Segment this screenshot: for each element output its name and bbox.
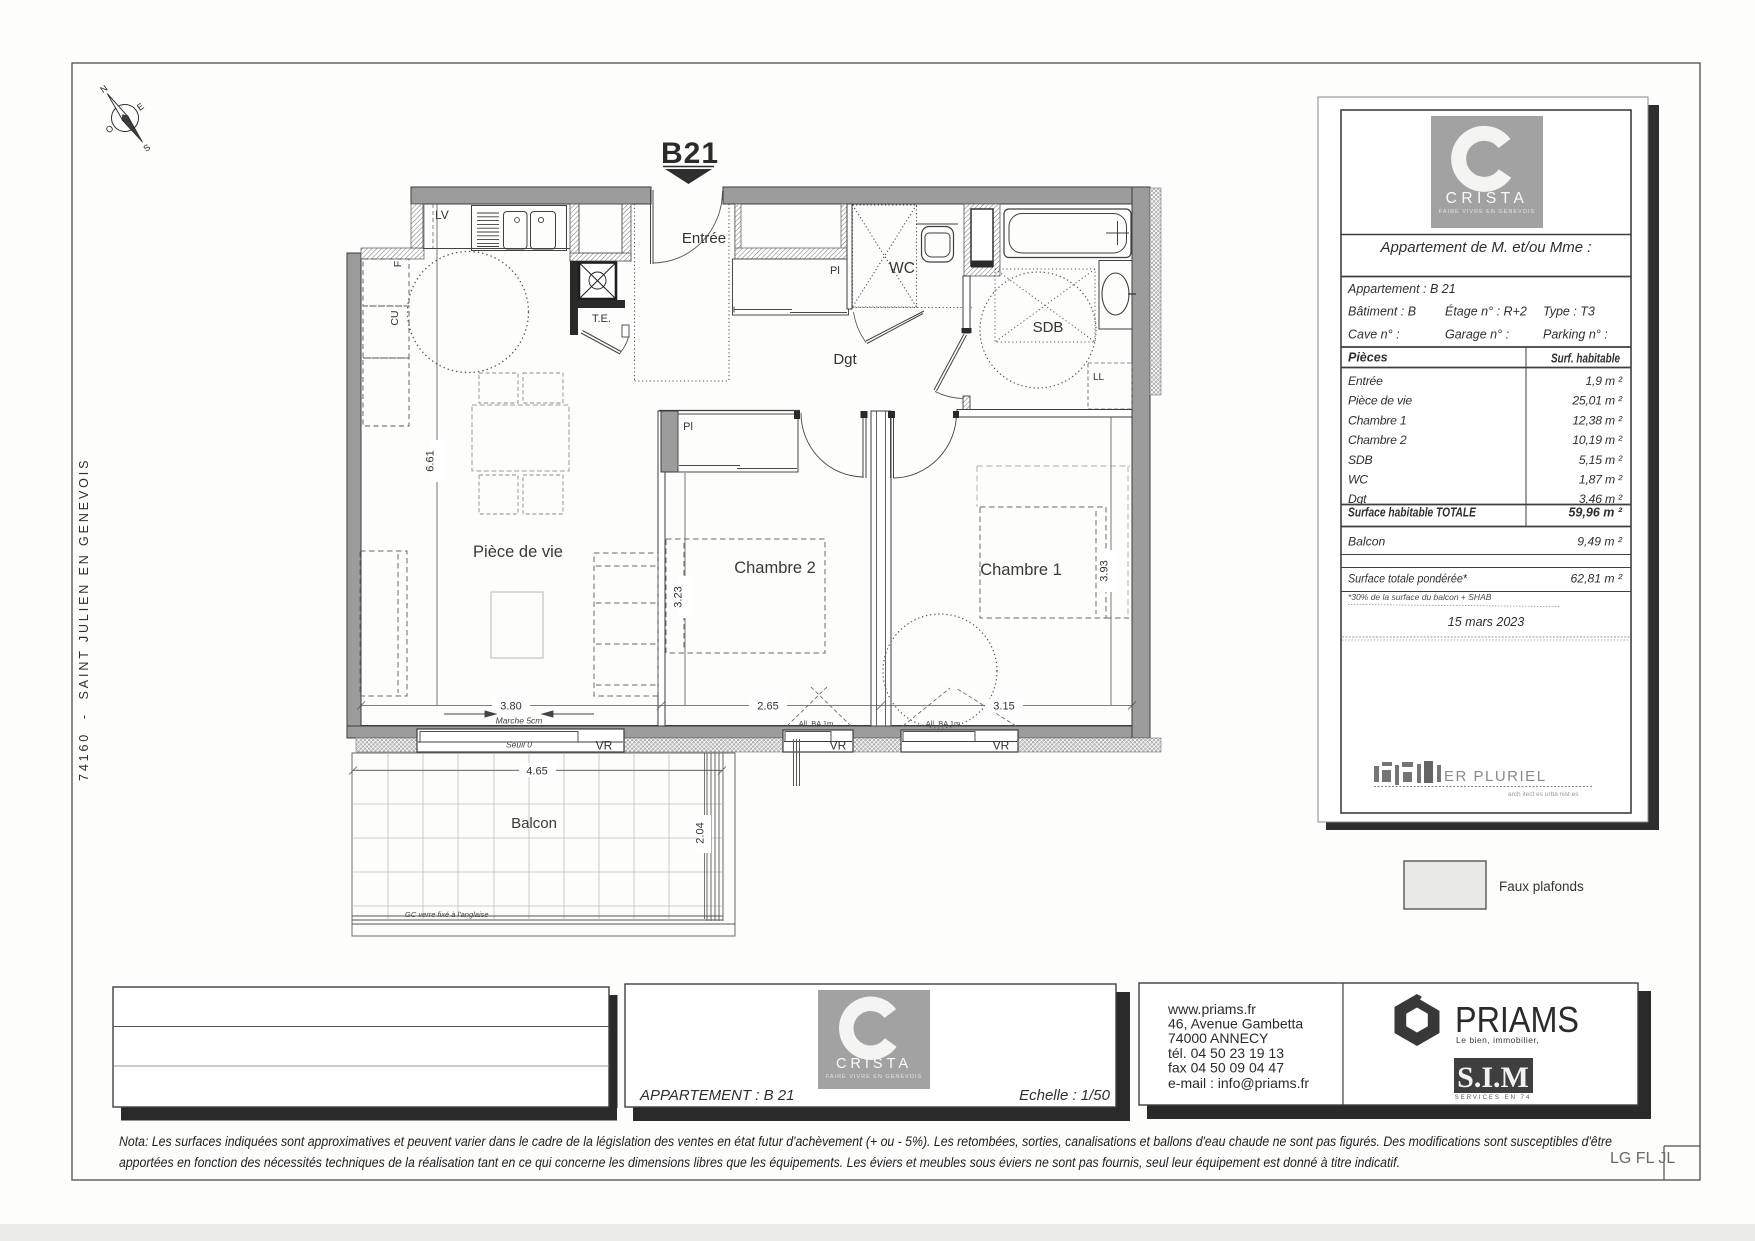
svg-text:LG FL JL: LG FL JL bbox=[1610, 1150, 1675, 1167]
svg-text:VR: VR bbox=[596, 739, 613, 753]
svg-text:Surf. habitable: Surf. habitable bbox=[1551, 352, 1620, 366]
svg-text:FAIRE VIVRE EN GENEVOIS: FAIRE VIVRE EN GENEVOIS bbox=[826, 1074, 922, 1080]
svg-text:9,49 m ²: 9,49 m ² bbox=[1577, 535, 1623, 549]
svg-text:Marche 5cm: Marche 5cm bbox=[496, 716, 543, 726]
svg-text:*30% de la surface du balcon +: *30% de la surface du balcon + SHAB bbox=[1348, 592, 1492, 602]
svg-text:Appartement de M. et/ou Mme :: Appartement de M. et/ou Mme : bbox=[1380, 239, 1592, 256]
svg-text:74000 ANNECY: 74000 ANNECY bbox=[1168, 1030, 1269, 1046]
svg-text:Chambre 1: Chambre 1 bbox=[980, 561, 1062, 579]
svg-text:Chambre 2: Chambre 2 bbox=[1348, 433, 1407, 447]
svg-text:2.65: 2.65 bbox=[757, 701, 778, 713]
svg-text:6.61: 6.61 bbox=[425, 450, 437, 471]
svg-text:Chambre 2: Chambre 2 bbox=[734, 559, 816, 577]
svg-text:Type : T3: Type : T3 bbox=[1543, 305, 1595, 319]
svg-text:1,87 m ²: 1,87 m ² bbox=[1579, 473, 1623, 487]
svg-text:S.I.M: S.I.M bbox=[1457, 1061, 1529, 1094]
svg-text:arch itect es urba nist es: arch itect es urba nist es bbox=[1508, 791, 1579, 798]
svg-text:Parking n° :: Parking n° : bbox=[1543, 328, 1608, 342]
svg-text:10,19 m ²: 10,19 m ² bbox=[1572, 433, 1623, 447]
svg-text:FAIRE VIVRE EN GENEVOIS: FAIRE VIVRE EN GENEVOIS bbox=[1439, 209, 1535, 215]
svg-text:15 mars 2023: 15 mars 2023 bbox=[1448, 615, 1524, 629]
svg-text:Pièce de vie: Pièce de vie bbox=[1348, 394, 1412, 408]
svg-text:APPARTEMENT : B 21: APPARTEMENT : B 21 bbox=[639, 1087, 795, 1104]
svg-text:Surface habitable TOTALE: Surface habitable TOTALE bbox=[1348, 506, 1477, 520]
svg-text:3.93: 3.93 bbox=[1099, 560, 1111, 581]
svg-text:SDB: SDB bbox=[1348, 453, 1373, 467]
svg-text:SDB: SDB bbox=[1033, 319, 1064, 336]
svg-text:F: F bbox=[392, 261, 404, 267]
svg-text:Balcon: Balcon bbox=[511, 815, 557, 832]
svg-text:Le bien, immobilier,: Le bien, immobilier, bbox=[1456, 1035, 1539, 1045]
svg-text:CRISTA: CRISTA bbox=[1446, 190, 1529, 207]
svg-text:Nota: Les surfaces indiquées s: Nota: Les surfaces indiquées sont approx… bbox=[119, 1134, 1612, 1149]
svg-text:12,38 m ²: 12,38 m ² bbox=[1572, 413, 1623, 427]
svg-text:GC verre fixé à l'anglaise: GC verre fixé à l'anglaise bbox=[405, 910, 489, 919]
svg-text:N: N bbox=[98, 83, 109, 95]
svg-text:LL: LL bbox=[1093, 372, 1105, 383]
svg-text:2.04: 2.04 bbox=[695, 822, 707, 843]
svg-text:WC: WC bbox=[1348, 473, 1368, 487]
svg-text:All. BA 1m: All. BA 1m bbox=[926, 719, 961, 728]
svg-text:S: S bbox=[141, 142, 152, 154]
svg-text:25,01 m ²: 25,01 m ² bbox=[1571, 394, 1623, 408]
svg-text:Appartement : B 21: Appartement : B 21 bbox=[1347, 282, 1456, 296]
svg-text:T.E.: T.E. bbox=[592, 313, 611, 325]
svg-text:Chambre 1: Chambre 1 bbox=[1348, 413, 1407, 427]
svg-text:B21: B21 bbox=[661, 137, 719, 170]
svg-text:Pl: Pl bbox=[830, 265, 840, 277]
svg-text:5,15 m ²: 5,15 m ² bbox=[1579, 453, 1623, 467]
svg-text:SERVICES EN 74: SERVICES EN 74 bbox=[1455, 1095, 1532, 1101]
svg-text:Bâtiment : B: Bâtiment : B bbox=[1348, 305, 1416, 319]
svg-text:WC: WC bbox=[889, 260, 915, 277]
svg-text:Pl: Pl bbox=[683, 421, 693, 433]
svg-text:fax 04 50 09 04 47: fax 04 50 09 04 47 bbox=[1168, 1060, 1284, 1076]
svg-text:e-mail : info@priams.fr: e-mail : info@priams.fr bbox=[1168, 1075, 1309, 1091]
svg-text:Pièce de vie: Pièce de vie bbox=[473, 543, 563, 561]
svg-text:1,9 m ²: 1,9 m ² bbox=[1585, 374, 1623, 388]
svg-text:Faux plafonds: Faux plafonds bbox=[1499, 879, 1584, 894]
svg-text:3.15: 3.15 bbox=[993, 701, 1014, 713]
svg-text:Garage n° :: Garage n° : bbox=[1445, 328, 1509, 342]
svg-text:Seuil 0: Seuil 0 bbox=[506, 740, 532, 750]
svg-text:Echelle : 1/50: Echelle : 1/50 bbox=[1019, 1087, 1111, 1104]
svg-text:All. BA 1m: All. BA 1m bbox=[799, 719, 834, 728]
svg-text:Entrée: Entrée bbox=[1348, 374, 1383, 388]
svg-text:VR: VR bbox=[993, 739, 1010, 753]
svg-text:apportées en fonction des néce: apportées en fonction des nécessités tec… bbox=[119, 1155, 1400, 1170]
svg-text:74160 - SAINT JULIEN EN GENE: 74160 - SAINT JULIEN EN GENEVOIS bbox=[77, 459, 91, 781]
svg-text:VR: VR bbox=[830, 739, 847, 753]
svg-text:Balcon: Balcon bbox=[1348, 535, 1385, 549]
svg-text:3.23: 3.23 bbox=[673, 586, 685, 607]
svg-text:62,81 m ²: 62,81 m ² bbox=[1571, 572, 1623, 586]
svg-text:Surface totale pondérée*: Surface totale pondérée* bbox=[1348, 572, 1468, 586]
svg-text:CU: CU bbox=[389, 310, 401, 325]
svg-text:Pièces: Pièces bbox=[1348, 351, 1388, 365]
svg-text:59,96 m ²: 59,96 m ² bbox=[1568, 506, 1622, 520]
svg-text:ER PLURIEL: ER PLURIEL bbox=[1444, 768, 1547, 785]
svg-text:Étage n° : R+2: Étage n° : R+2 bbox=[1445, 304, 1527, 319]
svg-text:Entrée: Entrée bbox=[682, 230, 726, 247]
svg-text:3.80: 3.80 bbox=[500, 701, 521, 713]
svg-text:4.65: 4.65 bbox=[526, 766, 547, 778]
svg-text:PRIAMS: PRIAMS bbox=[1455, 999, 1579, 1040]
svg-text:Dgt: Dgt bbox=[833, 351, 857, 368]
svg-text:CRISTA: CRISTA bbox=[836, 1056, 912, 1072]
svg-text:Cave n° :: Cave n° : bbox=[1348, 328, 1400, 342]
